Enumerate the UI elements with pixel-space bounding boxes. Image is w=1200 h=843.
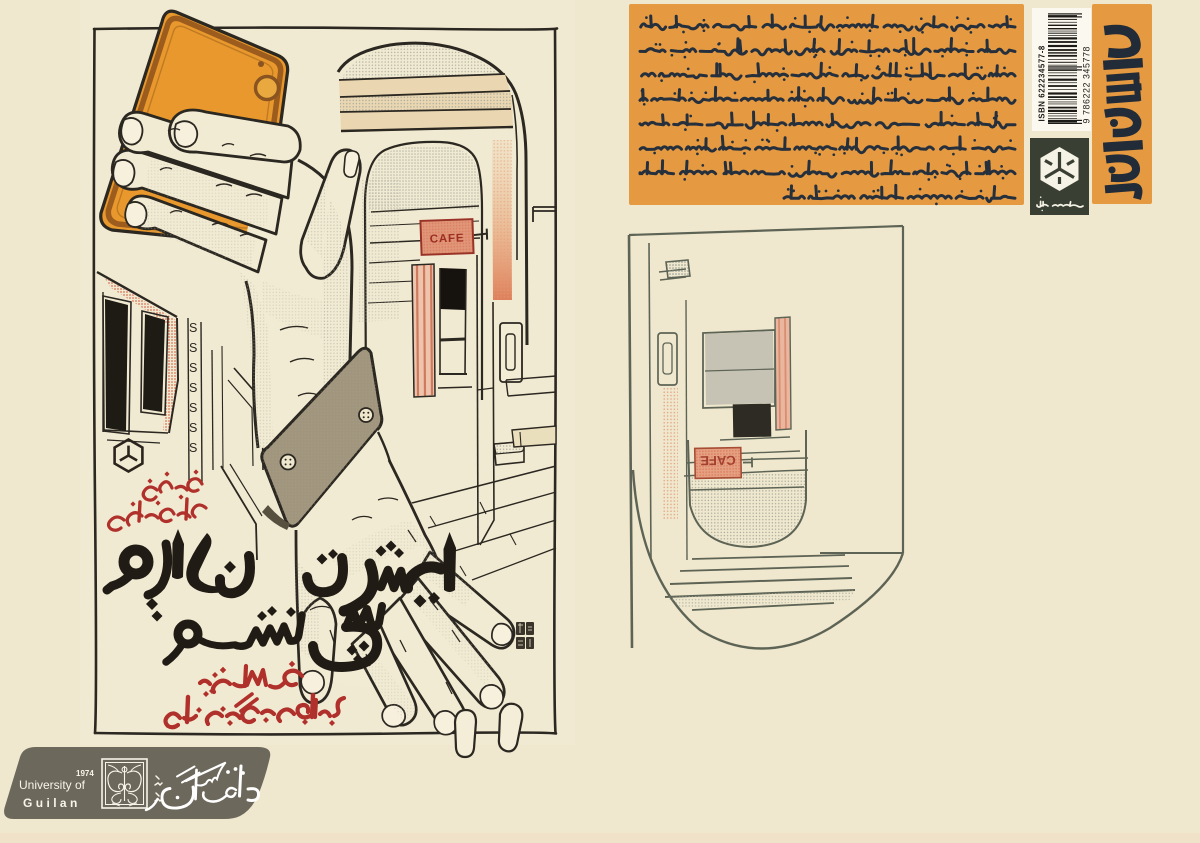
svg-text:S: S bbox=[189, 421, 197, 435]
svg-text:S: S bbox=[189, 361, 197, 375]
svg-text:S: S bbox=[189, 401, 197, 415]
svg-text:S: S bbox=[189, 441, 197, 455]
svg-text:Guilan: Guilan bbox=[23, 796, 81, 810]
svg-text:1974: 1974 bbox=[76, 769, 94, 778]
svg-text:S: S bbox=[189, 321, 197, 335]
svg-text:9 786222 345778: 9 786222 345778 bbox=[1082, 46, 1092, 124]
svg-text:CAFE: CAFE bbox=[700, 453, 736, 469]
svg-text:S: S bbox=[189, 381, 197, 395]
svg-text:CAFE: CAFE bbox=[430, 232, 465, 245]
svg-text:University of: University of bbox=[19, 778, 86, 792]
svg-text:S: S bbox=[189, 341, 197, 355]
svg-text:ISBN 622234577-8: ISBN 622234577-8 bbox=[1038, 45, 1047, 121]
